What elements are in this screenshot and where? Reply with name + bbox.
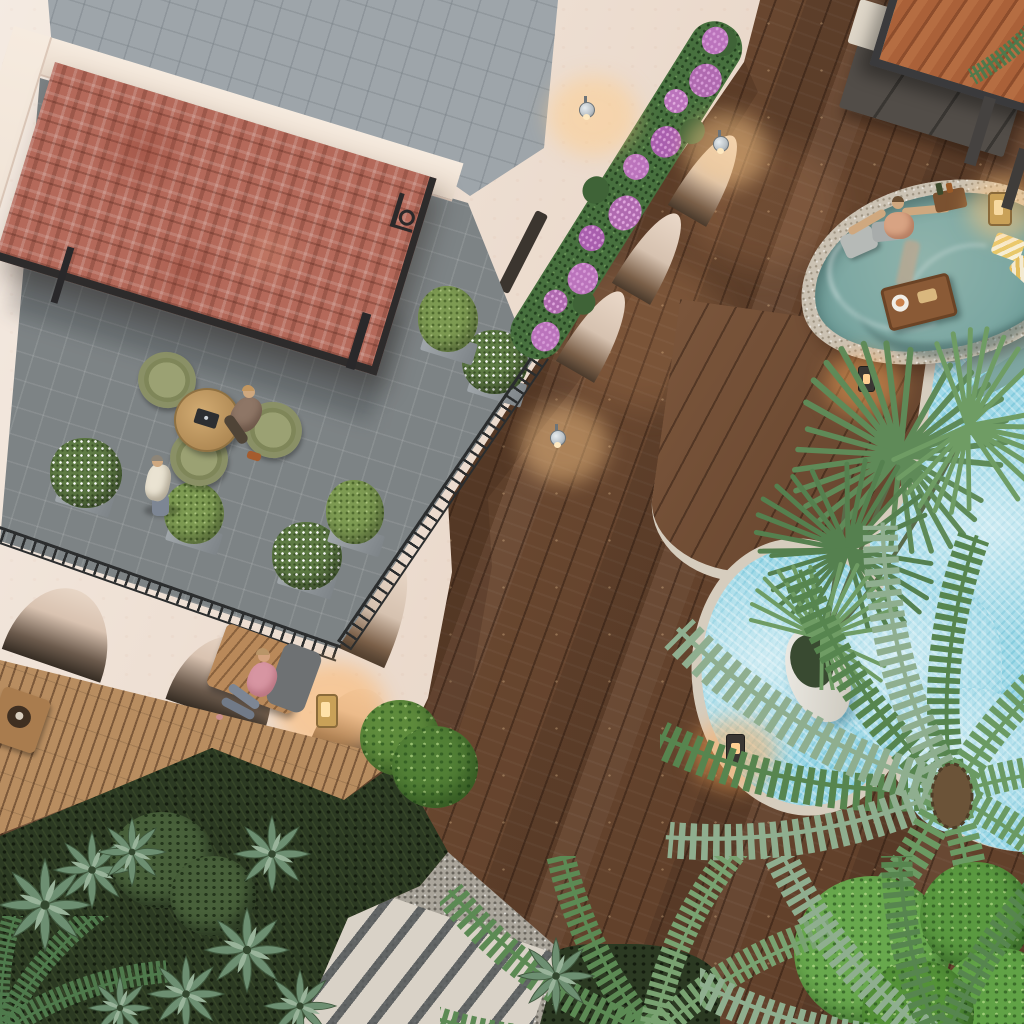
torso — [884, 212, 914, 239]
bread-board — [917, 288, 938, 304]
flower-cluster — [539, 285, 572, 318]
chrome-sconce-icon — [549, 424, 565, 448]
green-shrub — [326, 480, 384, 544]
menu-tablet — [193, 408, 219, 429]
brass-sconce-icon — [316, 694, 338, 728]
flower-cluster — [574, 220, 610, 256]
white-flower-bush — [50, 438, 122, 508]
shoe — [216, 714, 223, 720]
menu-icon — [204, 415, 209, 420]
beanie — [151, 455, 163, 461]
scene-aerial-courtyard — [0, 0, 1024, 1024]
chrome-sconce-icon — [712, 130, 728, 154]
hair — [256, 648, 269, 655]
agave-rosettes — [0, 780, 620, 1024]
palm-bottom-right — [700, 856, 1024, 1024]
iron-scroll-icon — [397, 208, 417, 228]
chrome-sconce-icon — [578, 96, 594, 120]
iron-bracket-icon — [390, 193, 422, 233]
green-shrub — [418, 286, 478, 352]
hair — [242, 385, 254, 391]
flower-cluster — [660, 85, 693, 118]
palm-top-right — [940, 0, 1024, 106]
sconce-glass — [321, 702, 330, 717]
hair — [892, 196, 904, 202]
flower-cluster — [618, 149, 654, 185]
